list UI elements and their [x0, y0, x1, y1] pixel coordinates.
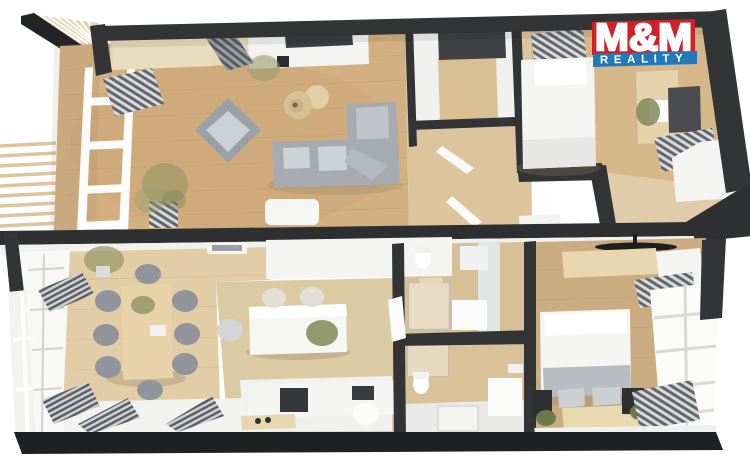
- svg-text:REALITY: REALITY: [600, 53, 689, 67]
